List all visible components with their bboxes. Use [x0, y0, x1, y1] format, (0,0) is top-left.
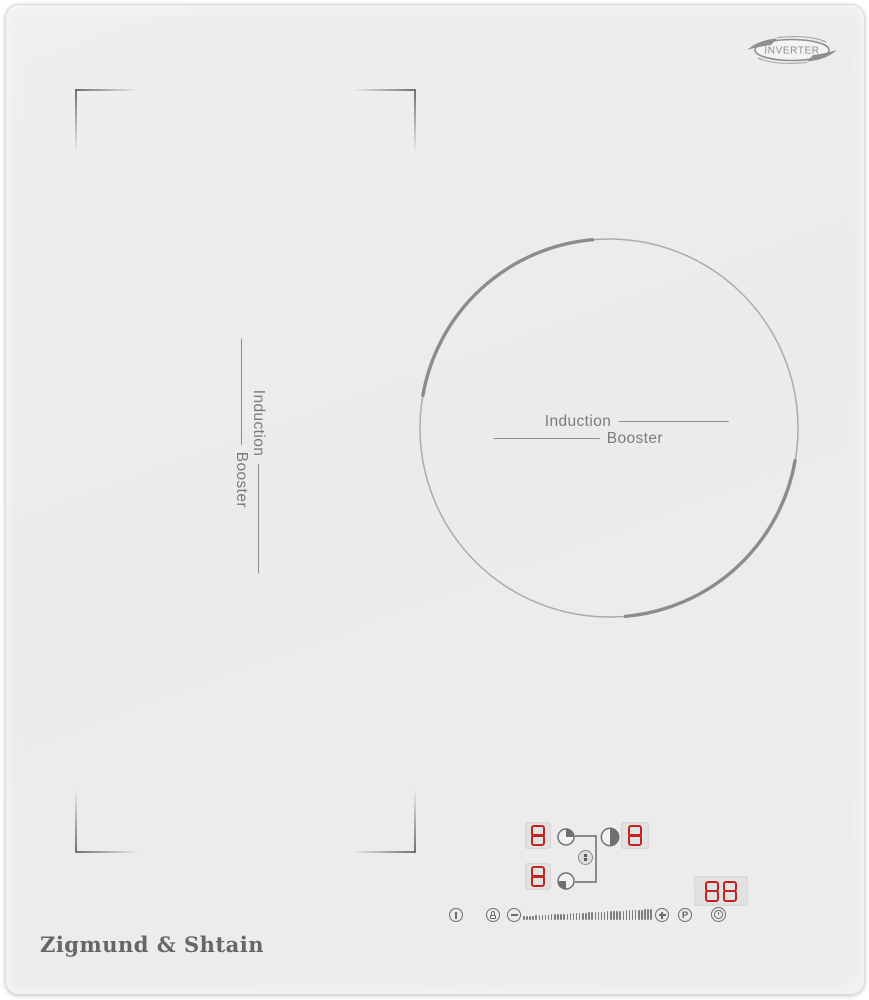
display-left-front-power — [525, 863, 551, 890]
label-rule — [494, 438, 600, 440]
timer-button[interactable] — [711, 907, 726, 922]
quarter-bottom-left-icon — [558, 881, 566, 889]
minus-button[interactable] — [507, 908, 521, 922]
bridge-connector-line — [575, 881, 597, 883]
bridge-connector-line — [595, 835, 597, 883]
timer-icon — [714, 910, 723, 919]
zone-corner-marker-bottom-left — [75, 789, 139, 853]
brand-logo: Zigmund & Shtain — [40, 932, 264, 957]
label-rule — [618, 421, 728, 423]
left-rear-zone-button[interactable] — [557, 828, 575, 846]
display-timer — [694, 876, 748, 906]
right-zone-label: Induction Booster — [494, 413, 729, 447]
booster-p-button[interactable]: P — [678, 908, 692, 922]
right-zone-button[interactable] — [600, 827, 620, 847]
label-rule — [241, 339, 243, 445]
lock-icon — [491, 911, 496, 915]
display-left-rear-power — [525, 822, 551, 849]
bridge-connector-line — [575, 835, 597, 837]
product-image: INVERTER Induction Booster Induction Boo… — [0, 0, 869, 1000]
left-zone-label: Induction Booster — [233, 339, 267, 574]
right-zone-label-line1: Induction — [545, 413, 612, 431]
child-lock-button[interactable] — [486, 908, 500, 922]
right-zone-label-line2: Booster — [607, 430, 663, 448]
plus-button[interactable] — [655, 908, 669, 922]
display-right-power — [621, 822, 649, 849]
quarter-top-right-icon — [566, 829, 574, 837]
power-icon — [455, 912, 457, 919]
minus-icon — [511, 914, 518, 916]
left-front-zone-button[interactable] — [557, 872, 575, 890]
p-button-label: P — [682, 910, 688, 921]
label-rule — [258, 463, 260, 573]
power-slider[interactable] — [523, 906, 652, 920]
power-button[interactable] — [449, 908, 463, 922]
inverter-badge: INVERTER — [744, 34, 840, 66]
half-right-icon — [610, 828, 619, 845]
left-zone-label-line2: Booster — [233, 452, 251, 508]
left-zone-label-line1: Induction — [250, 390, 268, 457]
zone-corner-marker-bottom-right — [352, 789, 416, 853]
zone-corner-marker-top-right — [352, 89, 416, 153]
zone-corner-marker-top-left — [75, 89, 139, 153]
badge-label: INVERTER — [764, 46, 819, 57]
bridge-zone-button[interactable] — [578, 850, 593, 865]
